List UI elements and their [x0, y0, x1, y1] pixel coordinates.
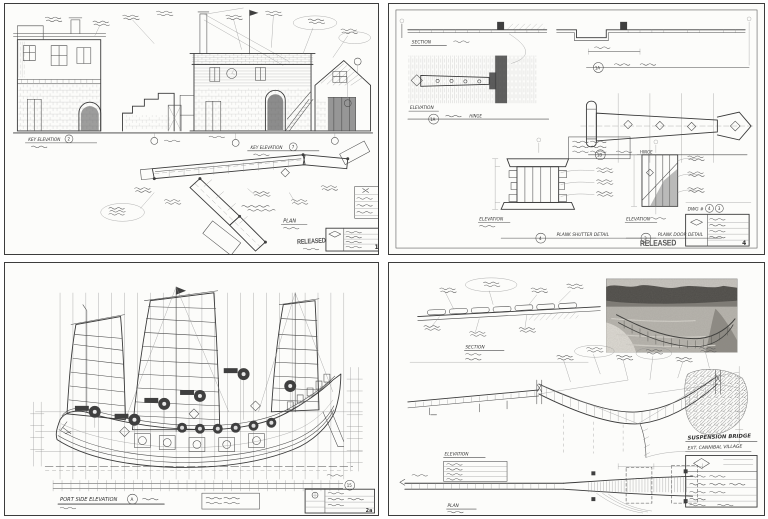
title-block-junk: 2a — [305, 489, 374, 514]
dwg-number-note: DWG # 4 3 — [686, 202, 751, 212]
hinge-large-label: HINGE — [640, 149, 653, 154]
hinge-large-elevation: 1B HINGE — [580, 93, 753, 162]
elevation-callout-bubbles — [151, 133, 339, 146]
dwg-number-1: 4 — [708, 206, 711, 211]
village-sheet-svg: KEY ELEVATION 2 KEY ELEVATION 7 — [5, 4, 378, 254]
deck-section-detail: SECTION — [418, 278, 601, 360]
bridge-plan: PLAN — [400, 463, 703, 513]
released-stamp-village: RELEASED — [297, 237, 327, 250]
bridge-title-line2: EXT. CANNIBAL VILLAGE — [687, 444, 742, 452]
photo-inset — [606, 279, 737, 352]
plan-drawing — [101, 141, 370, 254]
hinge-sheet-svg: SECTION ELEVATION 1A HINGE — [389, 4, 764, 254]
left-building-elevation — [13, 18, 105, 131]
bridge-elevation-label: ELEVATION — [445, 451, 470, 457]
hinge-reverse-callout: 1A — [595, 65, 601, 70]
bridge-sheet-svg: SECTION — [389, 263, 764, 515]
sheet-suspension-bridge: SECTION — [388, 262, 765, 516]
key-elevation-text-left: KEY ELEVATION — [28, 137, 60, 142]
hinge-small-label: HINGE — [469, 114, 482, 119]
sheet-number-junk: 2a — [366, 508, 373, 514]
mid-wall-steps-elevation — [123, 93, 182, 131]
elevation-label-shutter: ELEVATION — [479, 216, 504, 222]
key-elevation-callout-right: 7 — [292, 145, 295, 150]
right-building-elevation — [315, 61, 371, 131]
title-block-main-village: 1 — [326, 228, 378, 251]
hinge-reverse-label: 1A — [586, 63, 749, 73]
shutter-title-text: PLANK SHUTTER DETAIL — [557, 232, 610, 238]
sheet-village-elevations: KEY ELEVATION 2 KEY ELEVATION 7 — [4, 3, 379, 255]
key-elevation-text-right: KEY ELEVATION — [251, 145, 283, 150]
elevation-label-door: ELEVATION — [626, 216, 651, 222]
bridge-section-label: SECTION — [465, 344, 485, 350]
bridge-elevation: ELEVATION — [408, 345, 748, 481]
dwg-label-text: DWG # — [688, 206, 704, 212]
junk-sheet-svg: 15 PORT SIDE ELEVATION A — [5, 263, 378, 515]
plan-label-text: PLAN — [283, 218, 296, 224]
hinge-small-elevation: ELEVATION 1A HINGE — [408, 56, 549, 124]
drawing-set-page: KEY ELEVATION 2 KEY ELEVATION 7 — [0, 0, 768, 519]
central-building-elevation — [180, 8, 315, 131]
junk-title-callout: A — [130, 497, 133, 502]
elevation-label-hinge-small: ELEVATION — [410, 105, 435, 111]
sheet-hinge-details: SECTION ELEVATION 1A HINGE — [388, 3, 765, 255]
hinge-large-callout: 1B — [597, 153, 603, 158]
title-block-small — [355, 187, 378, 219]
section-detail-right — [557, 17, 751, 66]
hinge-small-callout: 1A — [430, 117, 436, 122]
junk-note-box — [202, 493, 260, 509]
bridge-plan-label: PLAN — [448, 503, 460, 509]
plank-door-detail: ELEVATION 3 PLANK DOOR DETAIL — [625, 140, 721, 243]
bridge-title-line1: SUSPENSION BRIDGE — [687, 433, 751, 441]
key-elevation-label-left: KEY ELEVATION 2 — [25, 135, 96, 148]
title-block-bridge — [686, 455, 757, 507]
sheet-number-hinges: 4 — [742, 240, 746, 247]
junk-title-text: PORT SIDE ELEVATION — [60, 497, 117, 503]
plank-shutter-detail: ELEVATION 4 PLANK SHUTTER DETAIL — [478, 137, 656, 243]
released-stamp-hinges: RELEASED — [640, 238, 677, 248]
section-label-text: SECTION — [412, 40, 432, 46]
sheet-junk-elevation: 15 PORT SIDE ELEVATION A — [4, 262, 379, 516]
key-elevation-callout-left: 2 — [67, 137, 70, 142]
key-elevation-label-right: KEY ELEVATION 7 — [248, 143, 319, 156]
released-stamp-text-village: RELEASED — [297, 237, 327, 246]
shutter-callout: 4 — [539, 236, 542, 241]
foliage-hatch — [685, 369, 748, 434]
bridge-title: SUSPENSION BRIDGE EXT. CANNIBAL VILLAGE — [686, 433, 757, 451]
released-stamp-text-hinges: RELEASED — [640, 238, 677, 248]
title-block-hinges: 4 — [686, 214, 749, 247]
plan-label: PLAN — [281, 218, 307, 229]
junk-title-label: PORT SIDE ELEVATION A — [58, 494, 164, 509]
sheet-number-village: 1 — [375, 244, 378, 251]
junk-dim-callout: 15 — [347, 483, 353, 488]
dwg-number-2: 3 — [718, 206, 721, 211]
